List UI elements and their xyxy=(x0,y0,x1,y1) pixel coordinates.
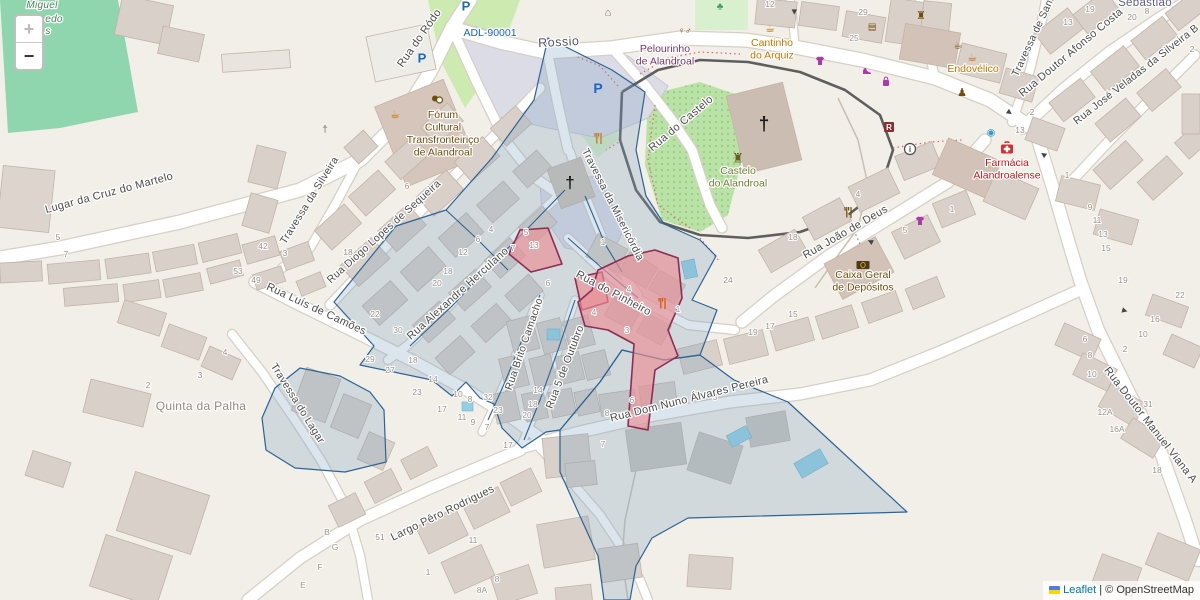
house-number: 17 xyxy=(765,321,775,331)
svg-text:†: † xyxy=(322,125,328,136)
house-number: 13 xyxy=(529,240,539,250)
house-number: 1 xyxy=(676,304,681,314)
house-number: 18 xyxy=(788,232,798,242)
zoom-control: + − xyxy=(14,14,44,71)
cafe-icon: ☕ xyxy=(954,41,963,52)
ukraine-flag-icon xyxy=(1049,586,1060,594)
house-number: 13 xyxy=(1063,17,1073,27)
svg-text:▶: ▶ xyxy=(791,9,798,15)
house-number: 1 xyxy=(1065,170,1070,180)
house-number: 20 xyxy=(1127,12,1137,22)
house-number: 14 xyxy=(533,385,543,395)
house-number: 7 xyxy=(511,243,516,253)
attribution-bar: Leaflet | © OpenStreetMap xyxy=(1043,581,1200,600)
shop-icon: ▤ xyxy=(868,21,877,31)
house-number: 1 xyxy=(426,567,431,577)
house-number: 19 xyxy=(1085,4,1095,14)
svg-text:†: † xyxy=(759,114,770,135)
leaflet-link[interactable]: Leaflet xyxy=(1063,584,1096,596)
shrine-icon: ⌂ xyxy=(605,7,612,19)
house-number: 3 xyxy=(283,248,288,258)
house-number: 10 xyxy=(453,389,463,399)
cafe-icon: ☕ xyxy=(765,23,775,35)
svg-text:⌂: ⌂ xyxy=(605,7,612,19)
church-cross-icon: † xyxy=(565,173,574,192)
house-number: G xyxy=(332,542,339,552)
svg-text:P: P xyxy=(593,80,602,96)
house-number: 13 xyxy=(1015,125,1025,135)
house-number: 8 xyxy=(495,574,500,584)
house-number: 4 xyxy=(856,189,861,199)
street-label: edo xyxy=(45,14,63,25)
street-label: Rossio xyxy=(538,34,580,50)
house-number: F xyxy=(317,562,322,572)
house-number: 23 xyxy=(493,405,503,415)
house-number: 8A xyxy=(477,585,488,595)
house-number: 18 xyxy=(1152,465,1162,475)
house-number: 2 xyxy=(1190,44,1195,54)
svg-text:☕: ☕ xyxy=(765,23,775,35)
house-number: 5 xyxy=(56,232,61,242)
info-icon: i xyxy=(905,144,916,155)
house-number: 5 xyxy=(524,227,529,237)
house-number: 18 xyxy=(443,266,453,276)
svg-text:☕: ☕ xyxy=(390,109,400,121)
house-number: B xyxy=(324,527,330,537)
one-way-arrow-icon: ▶ xyxy=(791,9,798,15)
church-cross-icon: † xyxy=(759,114,770,135)
house-number: 7 xyxy=(601,439,606,449)
svg-text:†: † xyxy=(565,173,574,192)
house-number: 22 xyxy=(370,309,380,319)
poi-label: Endovélico xyxy=(947,63,999,75)
clothes-shop-icon xyxy=(816,57,824,66)
parking-icon: P xyxy=(418,51,427,66)
playground-icon: ♣ xyxy=(717,2,724,13)
house-number: 18 xyxy=(408,355,418,365)
parking-icon: P xyxy=(593,80,602,96)
svg-text:P: P xyxy=(418,51,427,66)
svg-text:☕: ☕ xyxy=(954,41,963,52)
house-number: 11 xyxy=(469,535,478,545)
openstreetmap-link[interactable]: © OpenStreetMap xyxy=(1105,584,1194,596)
house-number: 29 xyxy=(858,7,868,17)
house-number: 9 xyxy=(471,417,476,427)
pharmacy-icon xyxy=(1001,142,1013,154)
house-number: 9 xyxy=(1088,202,1093,212)
svg-text:♀♂: ♀♂ xyxy=(678,25,692,35)
house-number: 12A xyxy=(1097,407,1112,417)
house-number: 10 xyxy=(1138,329,1148,339)
house-number: 14 xyxy=(428,374,438,384)
house-number: 4 xyxy=(223,347,228,357)
house-number: 49 xyxy=(251,275,261,285)
house-number: 13 xyxy=(1098,229,1108,239)
house-number: 1 xyxy=(950,204,955,214)
house-number: 8 xyxy=(1088,350,1093,360)
house-number: 2 xyxy=(1030,107,1035,117)
poi-label: Pelourinhode Alandroal xyxy=(636,43,694,68)
house-number: 1 xyxy=(601,237,606,247)
svg-text:◉: ◉ xyxy=(987,128,996,139)
svg-text:♜: ♜ xyxy=(732,151,744,166)
one-way-arrow-icon: ▶ xyxy=(1121,307,1129,315)
parking-icon: P xyxy=(462,0,471,14)
street-label: Quinta da Palha xyxy=(156,399,247,413)
house-number: 12 xyxy=(458,247,468,257)
house-number: 30 xyxy=(393,325,403,335)
street-label: Lugar da Cruz do Martelo xyxy=(44,170,175,216)
poi-label: Cantinhodo Arquiz xyxy=(750,37,794,62)
svg-text:i: i xyxy=(909,145,911,154)
bank-icon xyxy=(857,261,870,269)
house-number: 23 xyxy=(412,387,422,397)
house-number: 29 xyxy=(365,354,375,364)
house-number: 12 xyxy=(765,0,775,9)
house-number: 20 xyxy=(522,410,532,420)
house-number: 15 xyxy=(1101,243,1111,253)
house-number: 25 xyxy=(849,33,859,43)
house-number: 24 xyxy=(723,275,733,285)
svg-text:▤: ▤ xyxy=(868,21,877,31)
house-number: 3 xyxy=(198,370,203,380)
house-number: 2 xyxy=(146,380,151,390)
bag-shop-icon xyxy=(883,77,889,86)
poi-label: ADL-90001 xyxy=(463,27,516,39)
monument-icon: ♟ xyxy=(957,87,967,99)
restroom-icon: ♀♂ xyxy=(678,25,692,35)
house-number: 8 xyxy=(468,394,473,404)
svg-text:R: R xyxy=(886,123,892,132)
svg-text:♣: ♣ xyxy=(717,2,724,13)
leaflet-map[interactable]: PPP†††⌂♣♀♂☕☕☕☕▤♜♜♟◉iR▶▶▶▶▶42353495718223… xyxy=(0,0,1200,600)
svg-text:♜: ♜ xyxy=(916,10,926,22)
house-number: 6 xyxy=(546,278,551,288)
house-number: 11 xyxy=(458,412,467,422)
house-number: 4 xyxy=(627,284,632,294)
house-number: 2 xyxy=(1123,344,1128,354)
ruins-icon: R xyxy=(884,122,894,132)
street-label: Sebastião xyxy=(1118,0,1172,9)
zoom-out-button[interactable]: − xyxy=(16,43,42,69)
house-number: 7 xyxy=(485,422,490,432)
house-number: 3 xyxy=(625,325,630,335)
svg-text:♟: ♟ xyxy=(957,87,967,99)
attribution-separator: | xyxy=(1099,584,1102,596)
cafe-icon: ☕ xyxy=(390,109,400,121)
castle-icon: ♜ xyxy=(732,151,744,166)
house-number: E xyxy=(300,580,306,590)
house-number: 17 xyxy=(503,440,513,450)
house-number: 53 xyxy=(233,266,243,276)
house-number: 32 xyxy=(483,392,493,402)
house-number: 19 xyxy=(1118,275,1128,285)
poi-label: Caixa Geralde Depósitos xyxy=(832,269,893,294)
street-label: Miguel xyxy=(26,0,58,11)
house-number: 16 xyxy=(1150,314,1160,324)
house-number: 42 xyxy=(258,241,268,251)
museum-icon: ♜ xyxy=(916,10,926,22)
house-number: 11 xyxy=(1093,215,1102,225)
house-number: 51 xyxy=(375,532,385,542)
house-number: 6 xyxy=(630,395,635,405)
house-number: 10 xyxy=(1087,369,1097,379)
house-number: 17 xyxy=(437,404,447,414)
house-number: 5 xyxy=(903,225,908,235)
house-number: 6 xyxy=(476,234,481,244)
house-number: 19 xyxy=(748,327,758,337)
house-number: 6 xyxy=(1083,334,1088,344)
house-number: 22 xyxy=(1175,290,1185,300)
house-number: 20 xyxy=(432,278,442,288)
street-label: s xyxy=(45,26,50,37)
wayside-cross-icon: † xyxy=(322,125,328,136)
house-number: 7 xyxy=(64,249,69,259)
house-number: 27 xyxy=(385,365,395,375)
svg-text:P: P xyxy=(462,0,471,14)
map-canvas: PPP†††⌂♣♀♂☕☕☕☕▤♜♜♟◉iR▶▶▶▶▶42353495718223… xyxy=(0,0,1200,600)
house-number: 16A xyxy=(1109,424,1124,434)
zoom-in-button[interactable]: + xyxy=(16,16,42,43)
fountain-icon: ◉ xyxy=(987,128,996,139)
house-number: 18 xyxy=(528,399,538,409)
house-number: 15 xyxy=(788,309,798,319)
house-number: 4 xyxy=(592,307,597,317)
house-number: 6 xyxy=(405,181,410,191)
svg-text:▶: ▶ xyxy=(1121,307,1129,315)
house-number: 4 xyxy=(489,224,494,234)
